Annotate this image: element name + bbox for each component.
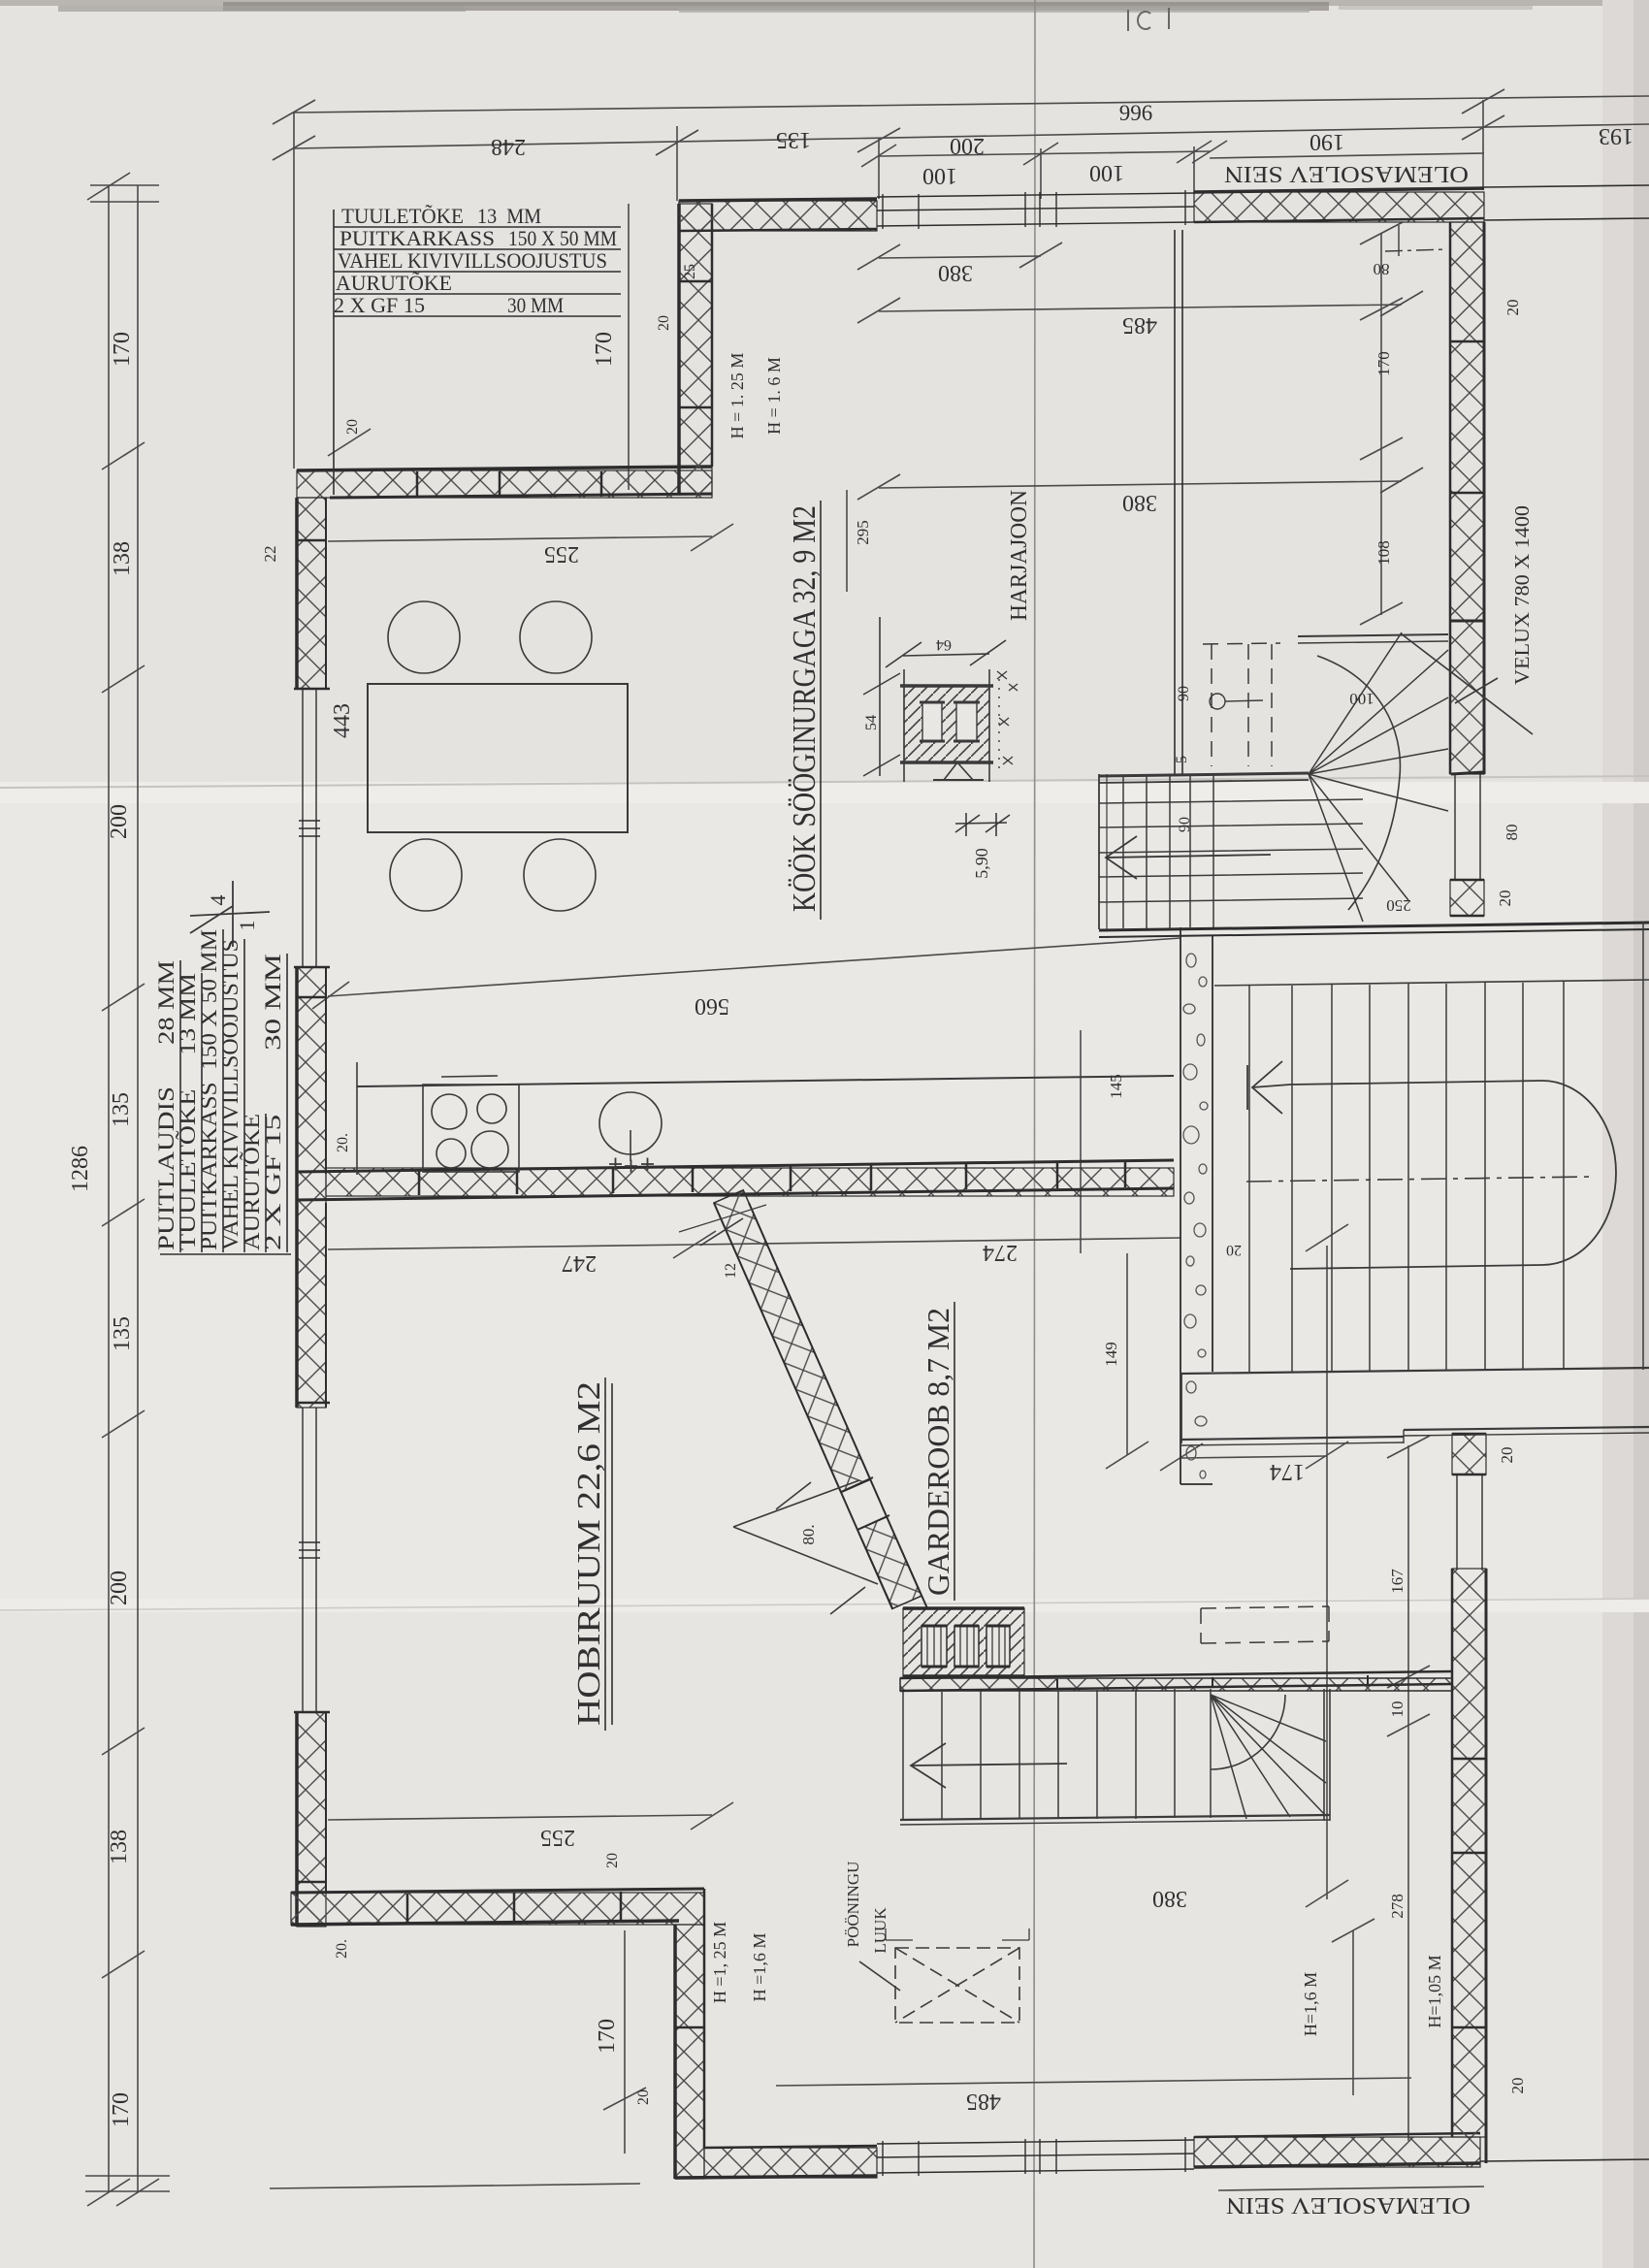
svg-text:HOBIRUUM 22,6 M2: HOBIRUUM 22,6 M2 bbox=[571, 1381, 607, 1726]
svg-text:380: 380 bbox=[938, 260, 973, 285]
svg-text:278: 278 bbox=[1388, 1894, 1406, 1919]
svg-text:H = 1. 25 M: H = 1. 25 M bbox=[727, 353, 747, 439]
svg-text:380: 380 bbox=[1122, 490, 1157, 515]
svg-text:20: 20 bbox=[1503, 300, 1522, 316]
svg-text:25: 25 bbox=[682, 264, 698, 279]
svg-text:274: 274 bbox=[983, 1240, 1018, 1265]
svg-text:170: 170 bbox=[109, 2092, 134, 2127]
svg-text:5: 5 bbox=[1174, 756, 1190, 763]
svg-text:H=1,6 M: H=1,6 M bbox=[1301, 1972, 1320, 2036]
svg-text:PÖÖNINGU: PÖÖNINGU bbox=[844, 1862, 862, 1948]
svg-text:149: 149 bbox=[1102, 1342, 1120, 1367]
svg-text:H =1, 25 M: H =1, 25 M bbox=[710, 1922, 729, 2003]
svg-text:443: 443 bbox=[330, 703, 355, 738]
svg-text:80: 80 bbox=[1503, 825, 1521, 841]
svg-text:20: 20 bbox=[604, 1853, 621, 1868]
svg-text:20: 20 bbox=[656, 315, 672, 331]
svg-text:H=1,05 M: H=1,05 M bbox=[1425, 1955, 1444, 2027]
svg-text:30 MM: 30 MM bbox=[507, 293, 564, 317]
svg-text:80: 80 bbox=[1374, 260, 1390, 278]
svg-text:54: 54 bbox=[863, 715, 880, 730]
svg-text:20: 20 bbox=[1508, 2078, 1527, 2094]
svg-text:174: 174 bbox=[1270, 1459, 1305, 1484]
svg-text:996: 996 bbox=[1119, 101, 1153, 125]
svg-text:135: 135 bbox=[110, 1316, 135, 1351]
svg-text:KÖÖK SÖÖGINURGAGA 32, 9 M2: KÖÖK SÖÖGINURGAGA 32, 9 M2 bbox=[787, 505, 823, 912]
svg-text:1: 1 bbox=[235, 921, 259, 931]
svg-text:90: 90 bbox=[1177, 817, 1193, 832]
svg-text:170: 170 bbox=[595, 2019, 620, 2054]
svg-text:255: 255 bbox=[544, 541, 579, 567]
svg-text:170: 170 bbox=[110, 332, 135, 367]
svg-text:135: 135 bbox=[776, 127, 811, 152]
svg-text:20: 20 bbox=[1226, 1242, 1242, 1258]
svg-text:AURUTÕKE: AURUTÕKE bbox=[336, 271, 452, 295]
svg-text:2 X GF 15: 2 X GF 15 bbox=[334, 293, 425, 317]
svg-text:2 X GF 15 30 MM: 2 X GF 15 30 MM bbox=[261, 954, 285, 1250]
svg-text:12: 12 bbox=[723, 1263, 739, 1279]
svg-text:193: 193 bbox=[1599, 123, 1633, 148]
svg-text:485: 485 bbox=[1122, 312, 1157, 338]
svg-text:145: 145 bbox=[1107, 1074, 1125, 1099]
svg-text:247: 247 bbox=[562, 1250, 597, 1276]
svg-text:20: 20 bbox=[1498, 1447, 1516, 1464]
svg-text:200: 200 bbox=[950, 133, 985, 158]
svg-text:TUULETÕKE: TUULETÕKE bbox=[341, 204, 464, 228]
svg-text:20: 20 bbox=[635, 2090, 652, 2105]
svg-text:380: 380 bbox=[1152, 1886, 1187, 1911]
svg-text:VAHEL KIVIVILLSOOJUSTUS: VAHEL KIVIVILLSOOJUSTUS bbox=[338, 248, 607, 273]
svg-text:HARJAJOON: HARJAJOON bbox=[1007, 490, 1032, 621]
svg-text:170: 170 bbox=[1374, 351, 1393, 376]
svg-text:560: 560 bbox=[695, 993, 729, 1019]
svg-text:20: 20 bbox=[344, 419, 361, 435]
svg-text:64: 64 bbox=[936, 636, 952, 653]
svg-text:20.: 20. bbox=[334, 1939, 350, 1959]
svg-text:100: 100 bbox=[922, 163, 957, 188]
svg-text:OLEMASOLEV SEIN: OLEMASOLEV SEIN bbox=[1226, 2192, 1471, 2218]
svg-text:190: 190 bbox=[1309, 129, 1344, 154]
svg-text:250: 250 bbox=[1386, 896, 1411, 915]
svg-text:138: 138 bbox=[107, 1830, 132, 1864]
svg-text:100: 100 bbox=[1349, 690, 1374, 708]
svg-text:4: 4 bbox=[206, 895, 230, 906]
svg-text:H = 1. 6 M: H = 1. 6 M bbox=[764, 357, 784, 435]
svg-text:GARDEROOB 8,7 M2: GARDEROOB 8,7 M2 bbox=[921, 1308, 955, 1596]
svg-text:1286: 1286 bbox=[68, 1146, 93, 1192]
svg-text:255: 255 bbox=[540, 1825, 575, 1850]
svg-text:295: 295 bbox=[854, 520, 872, 545]
svg-text:20: 20 bbox=[1496, 891, 1514, 907]
svg-text:5,90: 5,90 bbox=[972, 848, 991, 879]
svg-text:20.: 20. bbox=[335, 1133, 351, 1152]
svg-text:OLEMASOLEV SEIN: OLEMASOLEV SEIN bbox=[1224, 161, 1469, 186]
svg-text:248: 248 bbox=[491, 134, 526, 159]
svg-text:13 MM: 13 MM bbox=[477, 204, 541, 228]
svg-text:135: 135 bbox=[109, 1092, 134, 1127]
svg-text:138: 138 bbox=[110, 541, 135, 576]
svg-text:PUITKARKASS: PUITKARKASS bbox=[339, 226, 495, 250]
svg-text:LUUK: LUUK bbox=[871, 1907, 889, 1954]
svg-text:150 X 50 MM: 150 X 50 MM bbox=[508, 226, 617, 250]
svg-text:90: 90 bbox=[1176, 686, 1192, 701]
svg-text:10: 10 bbox=[1388, 1701, 1406, 1718]
svg-text:485: 485 bbox=[966, 2089, 1001, 2114]
svg-text:VELUX 780 X 1400: VELUX 780 X 1400 bbox=[1510, 505, 1534, 685]
svg-text:100: 100 bbox=[1089, 160, 1124, 185]
svg-text:22: 22 bbox=[261, 546, 279, 563]
svg-text:200: 200 bbox=[107, 1571, 132, 1605]
svg-text:H =1,6 M: H =1,6 M bbox=[750, 1933, 769, 2002]
svg-text:80.: 80. bbox=[799, 1524, 818, 1544]
svg-text:170: 170 bbox=[592, 332, 617, 367]
svg-text:200: 200 bbox=[107, 804, 132, 839]
svg-text:167: 167 bbox=[1388, 1569, 1406, 1594]
svg-text:108: 108 bbox=[1374, 540, 1393, 566]
